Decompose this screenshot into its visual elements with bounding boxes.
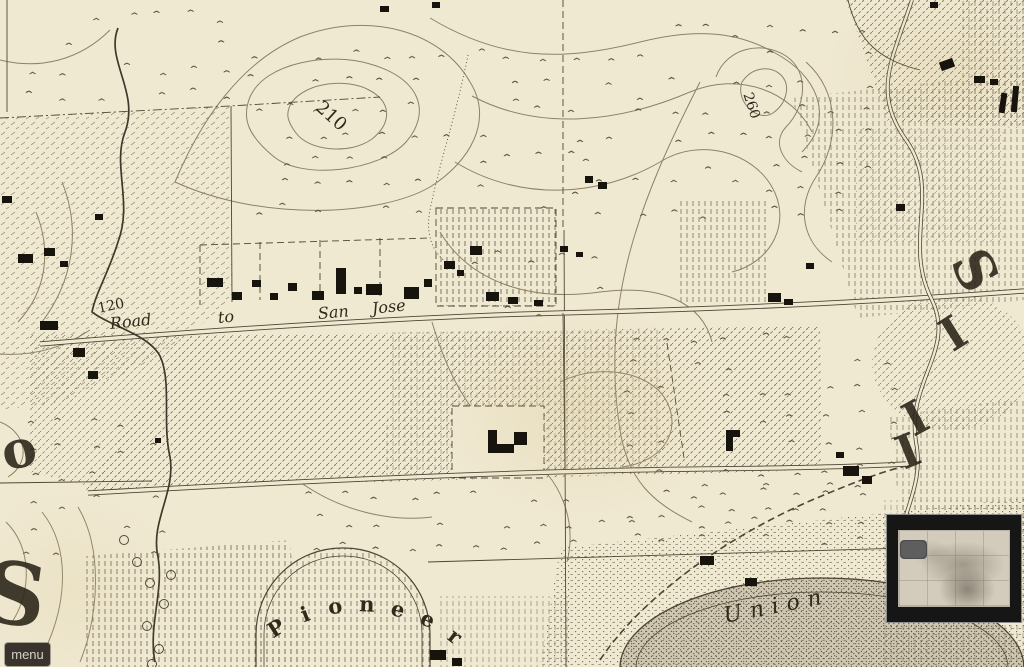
map-engraving [0,0,1024,667]
map-viewer: 210260120RoadtoSanJoseUnionPioneeroSSIII… [0,0,1024,667]
menu-button[interactable]: menu [5,643,50,666]
viewport-marker[interactable] [901,541,926,558]
overview-thumbnail [898,530,1010,607]
overview-inset[interactable] [886,514,1022,623]
tree-symbol [120,536,129,545]
map-canvas[interactable]: 210260120RoadtoSanJoseUnionPioneeroSSIII [0,0,1024,667]
